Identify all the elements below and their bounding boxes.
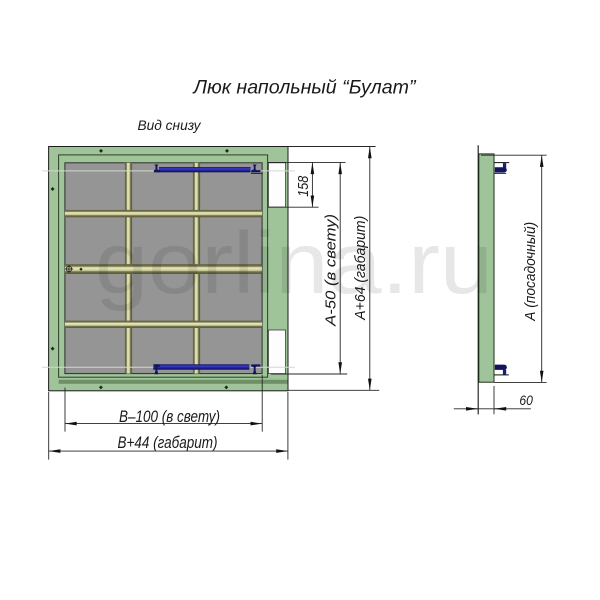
svg-text:60: 60 (519, 392, 533, 408)
svg-text:А+64 (габарит): А+64 (габарит) (352, 216, 369, 321)
svg-text:Люк напольный “Булат”: Люк напольный “Булат” (191, 78, 417, 99)
svg-text:А-50 (в свету): А-50 (в свету) (322, 214, 339, 327)
svg-text:А (посадочный): А (посадочный) (523, 222, 539, 322)
svg-text:В–100 (в свету): В–100 (в свету) (119, 408, 220, 426)
svg-text:В+44 (габарит): В+44 (габарит) (118, 434, 218, 452)
svg-text:Вид снизу: Вид снизу (138, 118, 202, 133)
svg-text:158: 158 (296, 176, 312, 197)
svg-text:gorlina.ru: gorlina.ru (95, 215, 493, 312)
